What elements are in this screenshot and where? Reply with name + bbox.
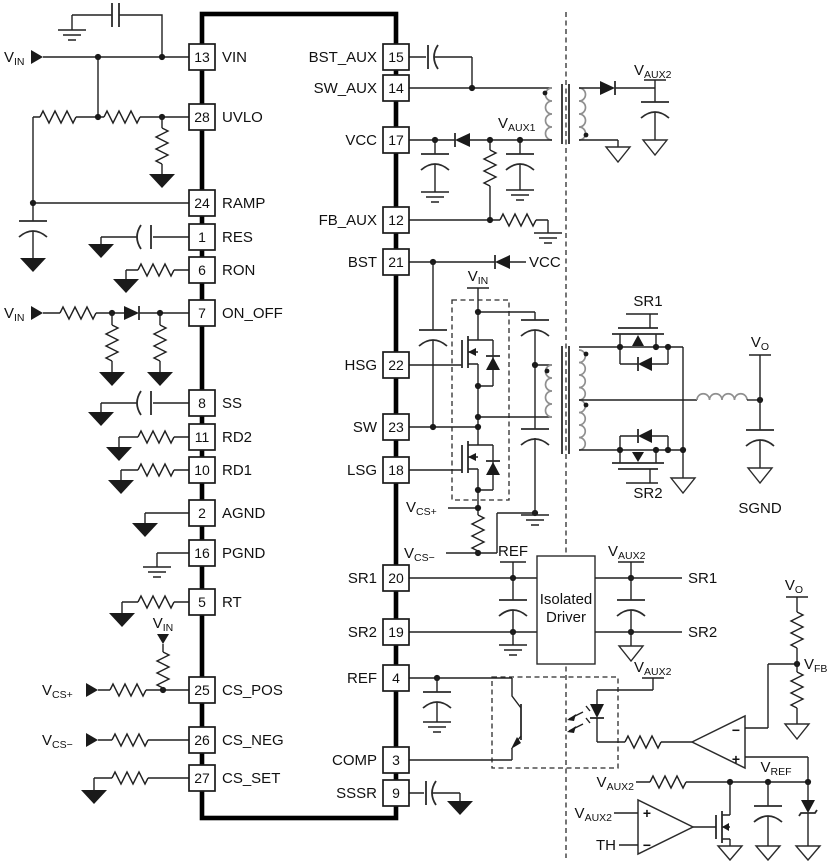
svg-text:23: 23	[388, 419, 404, 435]
earth-ground-icon	[506, 190, 534, 200]
rd2-resistor	[138, 431, 174, 443]
open-ground-icon	[718, 846, 742, 860]
fet-arrow-icon	[722, 823, 729, 831]
svg-text:VCC: VCC	[345, 132, 377, 149]
pin-ramp: 24RAMP	[189, 190, 265, 216]
vin-label: VIN	[4, 305, 25, 324]
earth-ground-icon	[534, 233, 562, 243]
diode-icon	[638, 429, 652, 443]
vcs-plus-label: VCS+	[406, 499, 437, 518]
svg-text:27: 27	[194, 770, 210, 786]
polarity-dot	[584, 352, 589, 357]
vaux2-label: VAUX2	[597, 774, 635, 793]
ic-application-schematic: VIN VIN	[0, 0, 830, 862]
sr2-mosfet	[612, 463, 664, 469]
ground-arrow-icon	[81, 790, 107, 804]
comp-resistor	[625, 736, 661, 748]
vcc-label: VCC	[529, 254, 561, 271]
svg-text:19: 19	[388, 624, 404, 640]
open-ground-icon	[606, 147, 630, 162]
ground-arrow-icon	[113, 279, 139, 293]
output-inductor	[697, 394, 747, 400]
pin-agnd: 2AGND	[189, 500, 266, 526]
shutdown-fet	[716, 811, 722, 843]
svg-text:16: 16	[194, 545, 210, 561]
pin-hsg: 22HSG	[344, 352, 409, 378]
th-label: TH	[596, 837, 616, 854]
ground-arrow-icon	[109, 613, 135, 627]
ss-capacitor	[137, 391, 151, 415]
input-arrow-icon	[86, 733, 98, 747]
sr2-gate-label: SR2	[633, 485, 662, 502]
svg-text:28: 28	[194, 109, 210, 125]
capacitive-divider	[521, 312, 552, 513]
svg-text:CS_NEG: CS_NEG	[222, 732, 284, 749]
error-amplifier-section: − +	[692, 661, 808, 782]
ground-arrow-icon	[88, 244, 114, 258]
svg-text:SR1: SR1	[348, 570, 377, 587]
polarity-dot	[584, 133, 589, 138]
pin-sssr: 9SSSR	[336, 780, 409, 806]
pin-sr2: 19SR2	[348, 619, 409, 645]
uvlo-resistor-2	[104, 111, 140, 123]
vref-label: VREF	[760, 759, 791, 778]
vin-label: VIN	[468, 268, 489, 287]
aux-secondary-coil	[579, 88, 586, 140]
svg-text:BST_AUX: BST_AUX	[309, 49, 377, 66]
pin-uvlo: 28UVLO	[189, 104, 263, 130]
svg-text:25: 25	[194, 682, 210, 698]
vin-input-arrow-icon	[31, 306, 43, 320]
svg-text:SR2: SR2	[348, 624, 377, 641]
res-network	[88, 225, 189, 258]
fb-aux-upper-resistor	[484, 150, 496, 186]
vcs-minus-label: VCS−	[42, 732, 73, 751]
thermal-comparator-section: + − VAUX2 TH	[575, 800, 716, 854]
sgnd-label: SGND	[738, 500, 782, 517]
cs-neg-resistor	[112, 734, 148, 746]
ref-supply-label: REF	[498, 543, 528, 560]
pin-sw-aux: 14SW_AUX	[314, 75, 409, 101]
light-arrowhead-icon	[567, 726, 576, 733]
schematic-page: VIN VIN	[0, 0, 830, 862]
svg-text:22: 22	[388, 357, 404, 373]
uvlo-resistor-1	[40, 111, 76, 123]
light-arrowhead-icon	[567, 714, 576, 721]
svg-text:18: 18	[388, 462, 404, 478]
vcs-plus-label: VCS+	[42, 682, 73, 701]
svg-text:8: 8	[198, 395, 206, 411]
rt-network	[109, 596, 189, 627]
svg-text:RD1: RD1	[222, 462, 252, 479]
pin-ss: 8SS	[189, 390, 242, 416]
cs-pos-resistor	[110, 684, 146, 696]
uvlo-divider-network	[33, 111, 189, 203]
optocoupler: VAUX2	[409, 659, 692, 768]
svg-text:RT: RT	[222, 594, 242, 611]
on-off-resistor-a	[106, 325, 118, 361]
ground-arrow-icon	[132, 523, 158, 537]
pin-ron: 6RON	[189, 257, 255, 283]
svg-text:CS_POS: CS_POS	[222, 682, 283, 699]
output-filter: VO SGND	[579, 334, 782, 517]
ground-arrow-icon	[447, 801, 473, 815]
agnd-network	[132, 513, 189, 537]
svg-text:ON_OFF: ON_OFF	[222, 305, 283, 322]
on-off-series-resistor	[60, 307, 96, 319]
svg-text:13: 13	[194, 49, 210, 65]
svg-text:VIN: VIN	[222, 49, 247, 66]
half-bridge: VIN	[409, 268, 552, 508]
svg-text:RD2: RD2	[222, 429, 252, 446]
svg-text:12: 12	[388, 212, 404, 228]
isolated-driver-label-1: Isolated	[540, 591, 593, 608]
pin-rt: 5RT	[189, 589, 242, 615]
diode-icon	[495, 255, 510, 269]
svg-text:5: 5	[198, 594, 206, 610]
high-side-fet	[462, 336, 468, 368]
sr1-gate-label: SR1	[633, 293, 662, 310]
rd2-network	[106, 431, 189, 461]
svg-text:26: 26	[194, 732, 210, 748]
vin-input-arrow-icon	[31, 50, 43, 64]
svg-text:1: 1	[198, 229, 206, 245]
cs-set-resistor	[112, 772, 148, 784]
low-side-fet	[462, 441, 468, 473]
svg-text:SW_AUX: SW_AUX	[314, 80, 377, 97]
vaux2-label: VAUX2	[575, 805, 613, 824]
svg-text:7: 7	[198, 305, 206, 321]
pin-on-off: 7ON_OFF	[189, 300, 283, 326]
svg-text:17: 17	[388, 132, 404, 148]
svg-text:COMP: COMP	[332, 752, 377, 769]
ss-network	[88, 391, 189, 426]
svg-text:HSG: HSG	[344, 357, 377, 374]
vaux1-label: VAUX1	[498, 115, 536, 134]
vfb-label: VFB	[804, 656, 827, 675]
rd1-network	[108, 464, 189, 494]
pin-fb-aux: 12FB_AUX	[319, 207, 409, 233]
svg-text:11: 11	[195, 429, 210, 445]
svg-text:FB_AUX: FB_AUX	[319, 212, 377, 229]
vaux2-label: VAUX2	[634, 659, 672, 678]
body-diode-icon	[486, 357, 500, 370]
polarity-dot	[545, 369, 550, 374]
ramp-network	[19, 200, 189, 272]
sr1-mosfet	[612, 328, 664, 334]
pin-lsg: 18LSG	[347, 457, 409, 483]
pin-bst-aux: 15BST_AUX	[309, 44, 409, 70]
aux-primary-coil	[546, 88, 553, 140]
svg-text:PGND: PGND	[222, 545, 266, 562]
input-arrow-icon	[86, 683, 98, 697]
feedback-divider: VO VFB	[785, 577, 828, 739]
rt-resistor	[138, 596, 174, 608]
isolated-driver-section: REF Isolated Driver VAUX2 SR1 SR2	[409, 543, 717, 664]
ground-arrow-icon	[99, 372, 125, 386]
open-ground-icon	[796, 846, 820, 860]
earth-ground-icon	[143, 567, 171, 577]
ground-arrow-icon	[147, 372, 173, 386]
svg-text:RAMP: RAMP	[222, 195, 265, 212]
svg-text:SSSR: SSSR	[336, 785, 377, 802]
feedback-resistor-lower	[791, 672, 803, 708]
pin-res: 1RES	[189, 224, 253, 250]
svg-text:UVLO: UVLO	[222, 109, 263, 126]
earth-ground-icon	[499, 645, 527, 655]
svg-text:20: 20	[388, 570, 404, 586]
zener-diode-icon	[801, 800, 815, 813]
vin-label: VIN	[153, 615, 174, 634]
ground-arrow-icon	[108, 480, 134, 494]
earth-ground-icon	[521, 515, 549, 525]
body-diode-icon	[486, 462, 500, 475]
polarity-dot	[584, 403, 589, 408]
svg-text:CS_SET: CS_SET	[222, 770, 280, 787]
uvlo-lower-resistor	[156, 128, 168, 164]
ground-arrow-icon	[149, 174, 175, 188]
svg-text:6: 6	[198, 262, 206, 278]
open-ground-icon	[643, 140, 667, 155]
fet-arrow-icon	[632, 452, 644, 462]
svg-text:10: 10	[194, 462, 210, 478]
input-capacitor	[112, 3, 119, 27]
sr1-fet: SR1	[579, 293, 683, 371]
diode-icon	[638, 357, 652, 371]
diode-icon	[455, 133, 470, 147]
pin-cs-neg: 26CS_NEG	[189, 727, 284, 753]
pin-vcc: 17VCC	[345, 127, 409, 153]
plus-sign: +	[732, 751, 740, 767]
svg-text:SW: SW	[353, 419, 378, 436]
open-ground-icon	[671, 478, 695, 493]
svg-text:RES: RES	[222, 229, 253, 246]
vo-label: VO	[785, 577, 803, 596]
vin-input-network: VIN	[4, 3, 189, 117]
vref-resistor	[650, 776, 686, 788]
on-off-network: VIN	[4, 305, 189, 386]
svg-text:14: 14	[388, 80, 404, 96]
pin-rd1: 10RD1	[189, 457, 252, 483]
fb-aux-network	[409, 214, 562, 243]
isolated-driver-label-2: Driver	[546, 609, 586, 626]
pin-vin: 13VIN	[189, 44, 247, 70]
svg-text:REF: REF	[347, 670, 377, 687]
pin-cs-set: 27CS_SET	[189, 765, 280, 791]
vcs-minus-label: VCS−	[404, 545, 435, 564]
ground-arrow-icon	[20, 258, 46, 272]
cs-pos-pullup-resistor	[157, 652, 169, 688]
vin-supply-arrow-icon	[157, 634, 169, 644]
pgnd-network	[143, 553, 189, 577]
ron-resistor	[138, 264, 174, 276]
svg-text:4: 4	[392, 670, 400, 686]
svg-text:2: 2	[198, 505, 206, 521]
svg-text:LSG: LSG	[347, 462, 377, 479]
fb-aux-lower-resistor	[500, 214, 536, 226]
svg-text:9: 9	[392, 785, 400, 801]
svg-text:AGND: AGND	[222, 505, 266, 522]
diode-icon	[124, 306, 139, 320]
svg-text:BST: BST	[348, 254, 377, 271]
cs-pos-network: VCS+ VIN	[42, 615, 189, 701]
ground-arrow-icon	[106, 447, 132, 461]
on-off-resistor-b	[154, 325, 166, 361]
res-capacitor	[137, 225, 151, 249]
earth-ground-icon	[58, 30, 86, 40]
vaux2-label: VAUX2	[608, 543, 646, 562]
cs-neg-network: VCS−	[42, 732, 189, 751]
earth-ground-icon	[423, 722, 451, 732]
rd1-resistor	[138, 464, 174, 476]
ground-arrow-icon	[88, 412, 114, 426]
vo-label: VO	[751, 334, 769, 353]
pin-sr1: 20SR1	[348, 565, 409, 591]
minus-sign: −	[732, 722, 740, 738]
sense-resistor	[472, 515, 484, 551]
open-ground-icon	[756, 846, 780, 860]
pin-pgnd: 16PGND	[189, 540, 266, 566]
svg-text:RON: RON	[222, 262, 255, 279]
cs-set-network	[81, 772, 189, 804]
vaux2-label: VAUX2	[634, 62, 672, 81]
sssr-network	[409, 781, 473, 815]
pin-ref: 4REF	[347, 665, 409, 691]
svg-text:24: 24	[194, 195, 210, 211]
open-ground-icon	[785, 724, 809, 739]
led-icon	[590, 704, 604, 718]
sr2-output-label: SR2	[688, 624, 717, 641]
pin-comp: 3COMP	[332, 747, 409, 773]
aux-bootstrap-network	[409, 45, 552, 91]
vin-label: VIN	[4, 49, 25, 68]
fet-arrow-icon	[632, 335, 644, 346]
pin-bst: 21BST	[348, 249, 409, 275]
diode-icon	[600, 81, 615, 95]
ron-network	[113, 264, 189, 293]
fet-arrow-icon	[468, 453, 476, 461]
open-ground-icon	[748, 468, 772, 483]
pin-cs-pos: 25CS_POS	[189, 677, 283, 703]
ref-network	[409, 675, 512, 732]
svg-text:3: 3	[392, 752, 400, 768]
pin-rd2: 11RD2	[189, 424, 252, 450]
svg-text:15: 15	[388, 49, 404, 65]
feedback-resistor-upper	[791, 612, 803, 648]
svg-text:21: 21	[388, 254, 404, 270]
minus-sign: −	[643, 837, 651, 853]
vcc-vaux1-network: VAUX1	[409, 115, 552, 220]
sr2-fet: SR2	[579, 429, 683, 502]
polarity-dot	[543, 91, 548, 96]
earth-ground-icon	[421, 192, 449, 202]
pin-sw: 23SW	[353, 414, 409, 440]
vaux2-output-network: VAUX2	[579, 62, 672, 162]
sr1-output-label: SR1	[688, 570, 717, 587]
plus-sign: +	[643, 805, 651, 821]
fet-arrow-icon	[468, 348, 476, 356]
svg-text:SS: SS	[222, 395, 242, 412]
